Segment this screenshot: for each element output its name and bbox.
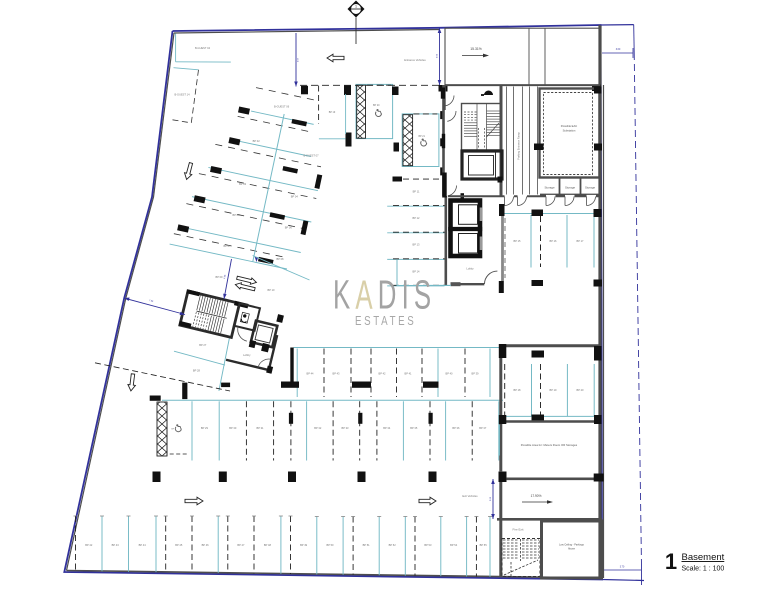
svg-text:BP 10: BP 10 — [267, 288, 275, 292]
svg-text:Above: Above — [568, 548, 576, 551]
svg-text:BP 40: BP 40 — [445, 372, 453, 376]
svg-text:Fire Exit: Fire Exit — [512, 528, 523, 532]
svg-text:BP 42: BP 42 — [378, 372, 386, 376]
svg-text:3.60: 3.60 — [616, 49, 621, 51]
svg-text:BP 39: BP 39 — [471, 372, 479, 376]
svg-text:17.90%: 17.90% — [531, 494, 542, 498]
svg-text:BP 19: BP 19 — [329, 111, 336, 114]
svg-text:Exit Vehicles: Exit Vehicles — [462, 494, 478, 498]
svg-text:BP 21: BP 21 — [418, 135, 425, 138]
svg-text:ESTATES: ESTATES — [355, 315, 416, 328]
svg-text:1: 1 — [665, 549, 677, 574]
svg-text:BP 42: BP 42 — [85, 543, 93, 547]
svg-text:BP 16: BP 16 — [549, 239, 557, 243]
svg-text:BP 04: BP 04 — [291, 195, 299, 199]
svg-text:BP 27: BP 27 — [199, 343, 207, 347]
svg-text:BP 15: BP 15 — [513, 239, 521, 243]
svg-text:BP 32: BP 32 — [314, 426, 322, 430]
svg-text:BP 49: BP 49 — [300, 543, 308, 547]
svg-text:Low Ceiling - Parkings: Low Ceiling - Parkings — [559, 544, 585, 547]
svg-text:BP 51: BP 51 — [363, 543, 371, 547]
svg-text:B-GUEST 14: B-GUEST 14 — [174, 92, 190, 96]
svg-text:Scale: 1 : 100: Scale: 1 : 100 — [682, 566, 725, 573]
svg-text:BP 18: BP 18 — [513, 388, 521, 392]
svg-text:BP 08: BP 08 — [276, 257, 284, 261]
svg-text:BP 07: BP 07 — [223, 244, 231, 248]
svg-text:BP 05: BP 05 — [232, 213, 240, 217]
svg-text:BP 03: BP 03 — [239, 182, 247, 186]
svg-text:Possible Area for: Meters Roo: Possible Area for: Meters Room OR Storag… — [521, 443, 578, 447]
svg-text:BP 12: BP 12 — [412, 216, 420, 220]
svg-text:BP 44: BP 44 — [306, 372, 314, 376]
svg-text:Substation: Substation — [563, 129, 576, 133]
svg-text:BP 13: BP 13 — [412, 243, 420, 247]
svg-text:BP 47: BP 47 — [237, 543, 245, 547]
svg-text:BP 28: BP 28 — [193, 369, 201, 373]
svg-text:Possible EAC: Possible EAC — [561, 124, 577, 128]
svg-text:BP 35: BP 35 — [410, 426, 418, 430]
svg-text:BP 30: BP 30 — [229, 426, 237, 430]
svg-text:BP 53: BP 53 — [424, 543, 432, 547]
svg-text:Storage: Storage — [585, 185, 596, 189]
svg-text:Lobby: Lobby — [466, 267, 474, 271]
svg-text:Basement: Basement — [682, 552, 725, 563]
svg-text:BP 43: BP 43 — [112, 543, 120, 547]
svg-text:BP 55: BP 55 — [480, 543, 488, 547]
svg-text:BP 50: BP 50 — [326, 543, 334, 547]
svg-text:BP 43: BP 43 — [332, 372, 340, 376]
svg-text:BP 02: BP 02 — [253, 139, 261, 143]
svg-text:BP 52: BP 52 — [389, 543, 397, 547]
svg-text:BP 17: BP 17 — [576, 239, 584, 243]
svg-text:BP 37: BP 37 — [479, 426, 487, 430]
svg-text:KADIS: KADIS — [333, 273, 436, 318]
svg-text:BP 36: BP 36 — [452, 426, 460, 430]
svg-text:Storage: Storage — [565, 185, 576, 189]
svg-text:Storage: Storage — [544, 185, 555, 189]
svg-text:B-GUEST 04: B-GUEST 04 — [195, 46, 211, 50]
svg-text:BP 20: BP 20 — [576, 388, 584, 392]
svg-text:BP 44: BP 44 — [139, 543, 147, 547]
svg-text:B-GUEST 06: B-GUEST 06 — [274, 105, 290, 109]
svg-text:Parking Entrance Ramp: Parking Entrance Ramp — [517, 132, 521, 160]
svg-text:BP 48: BP 48 — [264, 543, 272, 547]
svg-text:B-GUEST 07: B-GUEST 07 — [303, 154, 319, 158]
svg-text:BP 11: BP 11 — [413, 190, 420, 194]
svg-text:BP 19: BP 19 — [549, 388, 557, 392]
svg-text:BP 09: BP 09 — [215, 275, 223, 279]
svg-text:Entrance Vehicles: Entrance Vehicles — [404, 58, 426, 62]
svg-text:BP 54: BP 54 — [450, 543, 458, 547]
svg-text:3.70: 3.70 — [620, 567, 625, 569]
svg-text:BP 34: BP 34 — [383, 426, 391, 430]
svg-text:BP 20: BP 20 — [373, 104, 380, 107]
svg-text:BP 33: BP 33 — [341, 426, 349, 430]
svg-text:1: 1 — [355, 5, 357, 9]
svg-text:15.31%: 15.31% — [470, 47, 482, 51]
svg-text:Lobby: Lobby — [243, 353, 251, 357]
svg-text:BP 06: BP 06 — [285, 225, 293, 229]
svg-text:BP 29: BP 29 — [201, 426, 209, 430]
svg-text:BP 31: BP 31 — [256, 426, 264, 430]
svg-text:BP 46: BP 46 — [202, 543, 210, 547]
svg-text:BP 41: BP 41 — [404, 372, 412, 376]
svg-text:BP 45: BP 45 — [175, 543, 183, 547]
